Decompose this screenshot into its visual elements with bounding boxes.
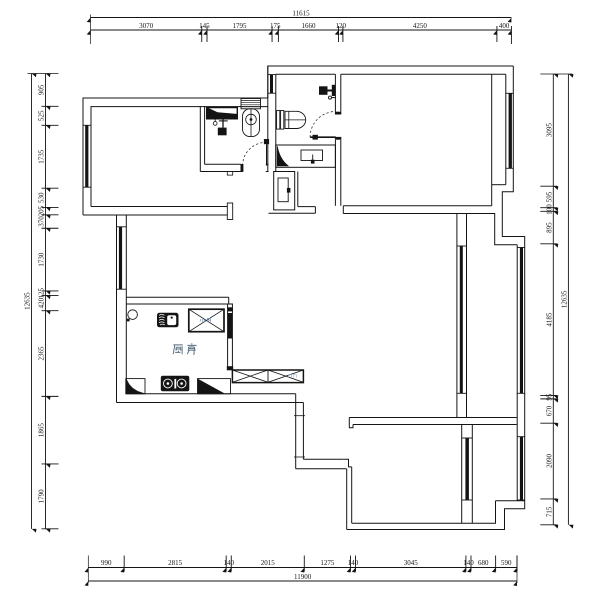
svg-text:1735: 1735 [38, 149, 46, 164]
svg-text:12635: 12635 [560, 290, 568, 308]
svg-text:680: 680 [478, 559, 489, 567]
svg-text:4250: 4250 [413, 22, 428, 30]
svg-text:3045: 3045 [404, 559, 419, 567]
svg-text:525: 525 [38, 110, 46, 121]
svg-text:1790: 1790 [38, 489, 46, 504]
svg-text:670: 670 [545, 405, 553, 416]
svg-text:140: 140 [463, 559, 474, 567]
svg-text:205: 205 [38, 205, 46, 216]
svg-text:140: 140 [223, 559, 234, 567]
svg-text:1275: 1275 [320, 559, 335, 567]
svg-text:120: 120 [335, 22, 346, 30]
svg-text:595: 595 [545, 191, 553, 202]
svg-text:905: 905 [38, 84, 46, 95]
svg-text:370: 370 [38, 216, 46, 227]
svg-text:2365: 2365 [38, 346, 46, 361]
svg-text:140: 140 [348, 559, 359, 567]
svg-text:895: 895 [545, 222, 553, 233]
svg-text:2090: 2090 [545, 454, 553, 469]
svg-text:1730: 1730 [38, 252, 46, 267]
svg-text:1795: 1795 [233, 22, 248, 30]
svg-text:11900: 11900 [294, 573, 312, 581]
svg-text:3095: 3095 [545, 123, 553, 138]
svg-text:2015: 2015 [261, 559, 276, 567]
svg-text:125: 125 [38, 287, 46, 298]
svg-text:990: 990 [101, 559, 112, 567]
svg-text:4185: 4185 [545, 312, 553, 327]
svg-text:175: 175 [270, 22, 281, 30]
svg-text:715: 715 [545, 506, 553, 517]
svg-text:590: 590 [501, 559, 512, 567]
svg-text:11615: 11615 [292, 9, 310, 17]
svg-text:530: 530 [38, 192, 46, 203]
svg-text:400: 400 [499, 22, 510, 30]
svg-text:1865: 1865 [38, 423, 46, 438]
svg-text:420: 420 [38, 297, 46, 308]
svg-text:12635: 12635 [24, 292, 32, 310]
svg-text:100: 100 [545, 204, 553, 215]
svg-text:1660: 1660 [301, 22, 316, 30]
svg-text:145: 145 [199, 22, 210, 30]
svg-text:2815: 2815 [168, 559, 183, 567]
svg-text:3070: 3070 [139, 22, 154, 30]
svg-text:95: 95 [545, 393, 553, 401]
